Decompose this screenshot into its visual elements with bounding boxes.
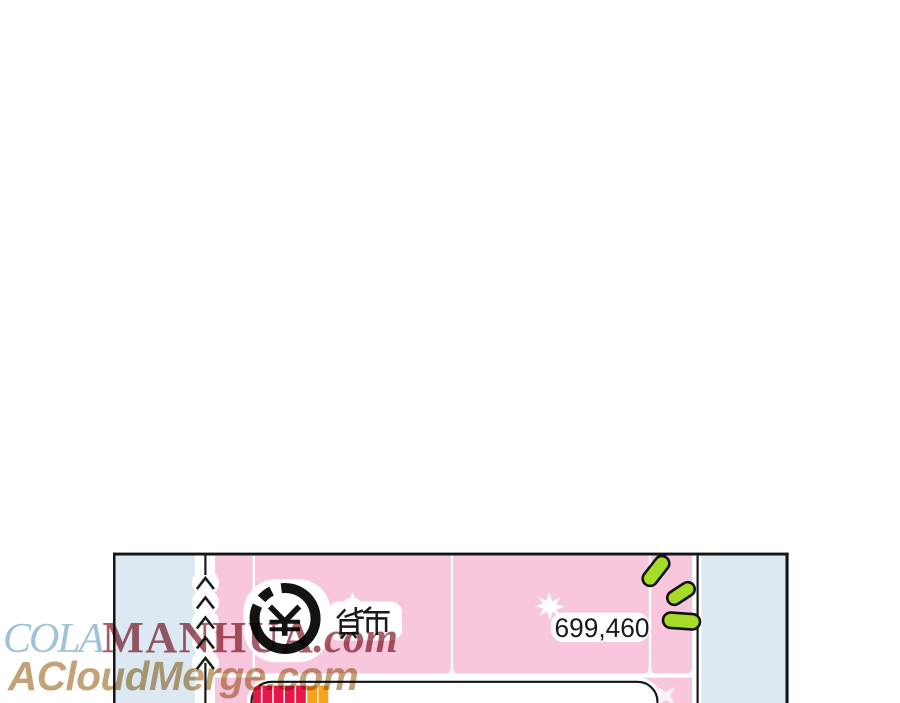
svg-text:699,460: 699,460 bbox=[555, 613, 650, 643]
